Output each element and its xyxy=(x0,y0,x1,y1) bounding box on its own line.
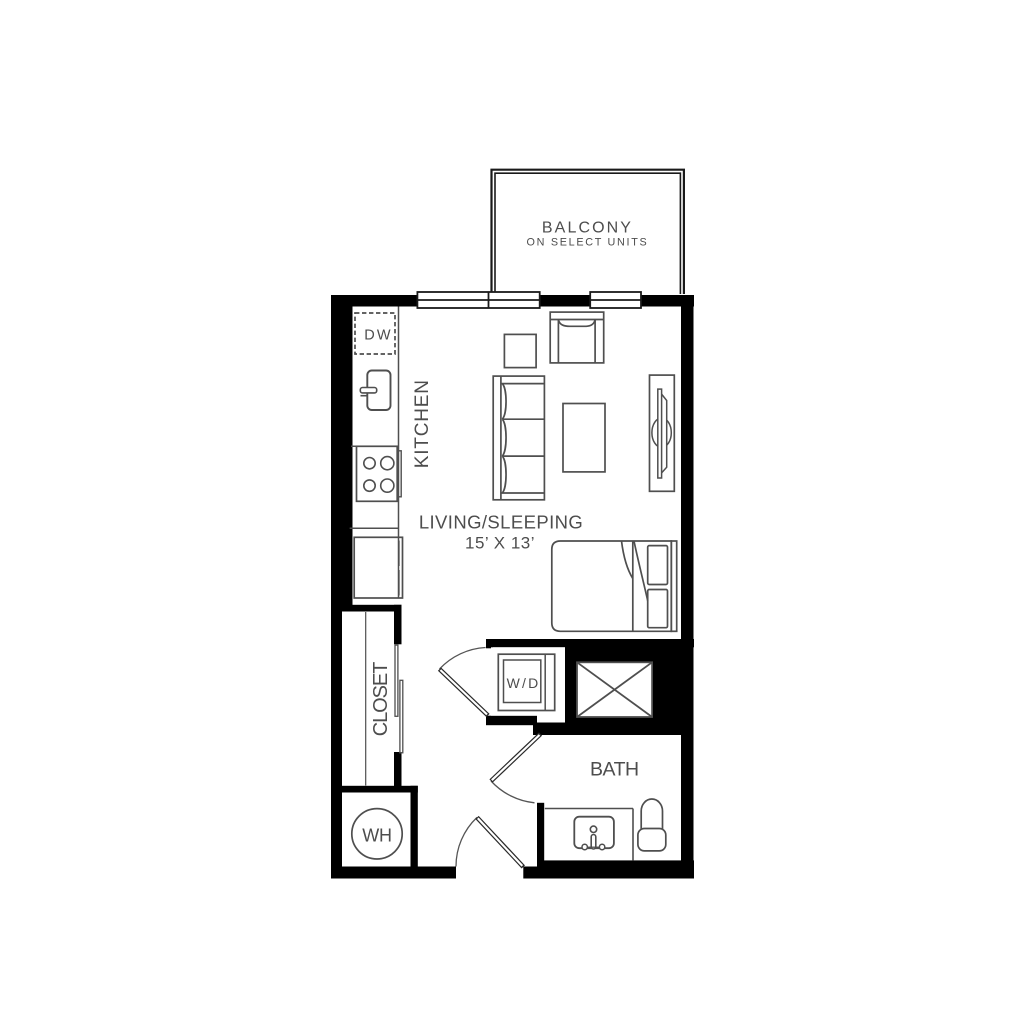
svg-text:CLOSET: CLOSET xyxy=(370,662,392,736)
svg-text:W/D: W/D xyxy=(507,675,541,691)
svg-text:WH: WH xyxy=(362,826,391,846)
svg-text:KITCHEN: KITCHEN xyxy=(412,379,433,468)
svg-text:LIVING/SLEEPING: LIVING/SLEEPING xyxy=(419,512,583,533)
svg-text:DW: DW xyxy=(364,327,393,343)
svg-text:BATH: BATH xyxy=(590,759,639,781)
svg-text:BALCONY: BALCONY xyxy=(542,220,633,237)
svg-text:ON SELECT UNITS: ON SELECT UNITS xyxy=(527,237,649,249)
svg-text:15’ X 13’: 15’ X 13’ xyxy=(465,534,535,553)
